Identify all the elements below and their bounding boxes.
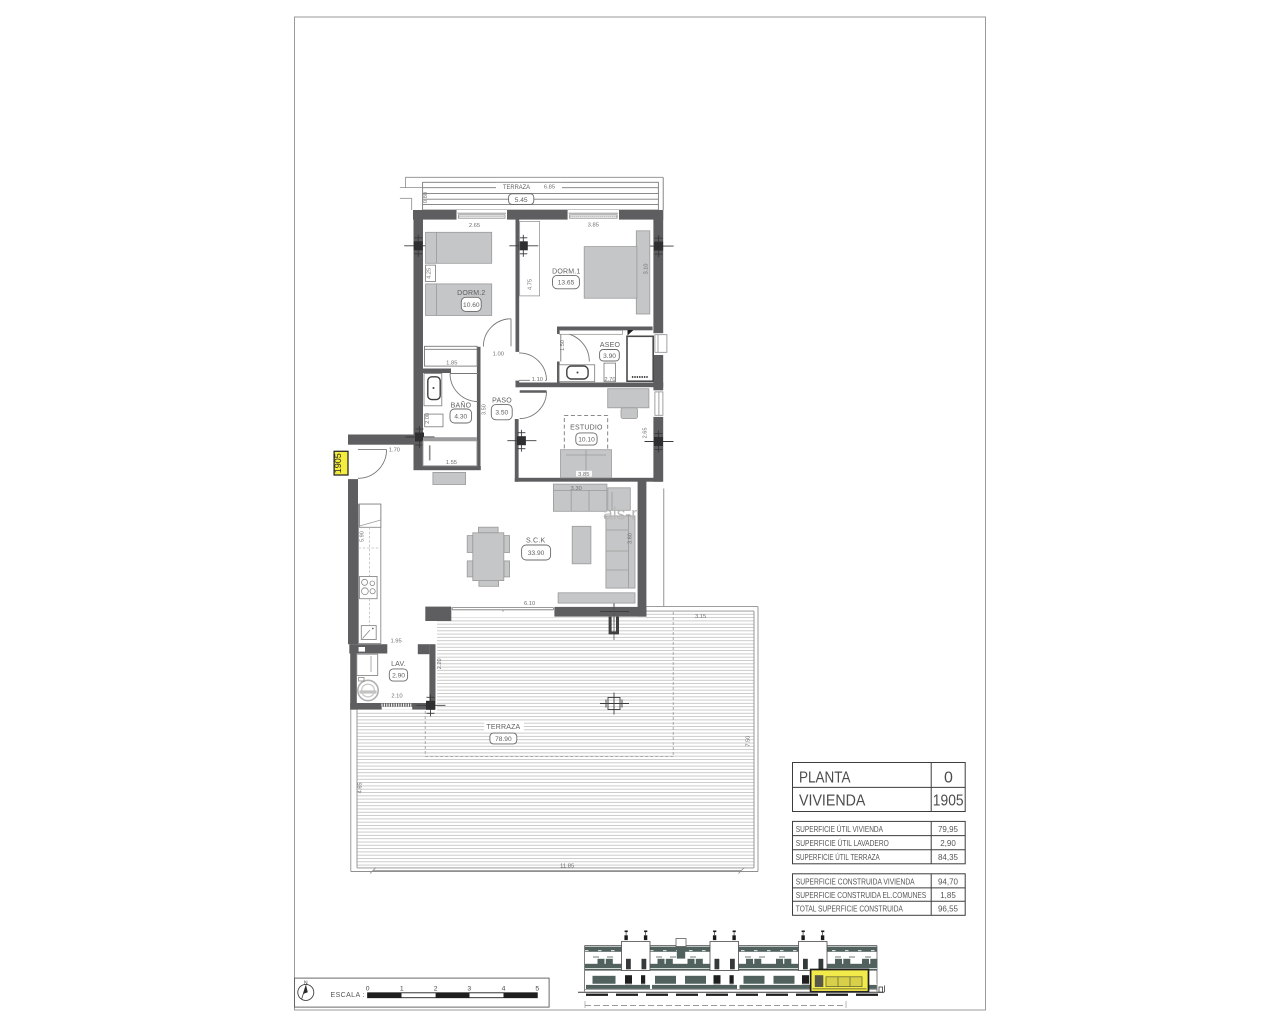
svg-text:PLANTA: PLANTA (799, 769, 851, 786)
svg-text:4.65: 4.65 (357, 782, 363, 793)
svg-text:3.60: 3.60 (627, 533, 633, 544)
svg-text:1905: 1905 (333, 453, 343, 473)
svg-text:VIVIENDA: VIVIENDA (799, 793, 866, 810)
svg-text:3.85: 3.85 (588, 223, 599, 229)
svg-text:PASO: PASO (492, 397, 512, 404)
svg-text:1.95: 1.95 (390, 639, 401, 645)
svg-text:2.65: 2.65 (643, 427, 649, 438)
svg-text:10.10: 10.10 (578, 437, 595, 444)
svg-text:ASEO: ASEO (600, 342, 621, 349)
svg-text:2.70: 2.70 (604, 377, 615, 383)
svg-text:4.25: 4.25 (427, 268, 433, 279)
svg-text:1.10: 1.10 (532, 377, 543, 383)
svg-text:96,55: 96,55 (938, 905, 959, 914)
svg-text:2.20: 2.20 (437, 658, 443, 669)
svg-text:3.85: 3.85 (578, 472, 589, 478)
svg-text:6.10: 6.10 (524, 601, 535, 607)
svg-text:N: N (304, 980, 308, 986)
svg-text:BAÑO: BAÑO (451, 401, 472, 410)
svg-text:5.90: 5.90 (360, 531, 366, 542)
svg-text:33.90: 33.90 (528, 550, 545, 557)
svg-text:DORM.1: DORM.1 (552, 268, 580, 275)
svg-text:1.55: 1.55 (446, 460, 457, 466)
svg-text:als-r: als-r (603, 504, 637, 524)
svg-text:4.75: 4.75 (527, 279, 533, 290)
svg-text:0: 0 (944, 769, 953, 786)
svg-text:1.00: 1.00 (493, 352, 504, 358)
svg-text:SUPERFICIE ÚTIL LAVADERO: SUPERFICIE ÚTIL LAVADERO (796, 839, 889, 848)
svg-text:3.30: 3.30 (571, 486, 582, 492)
svg-text:3.50: 3.50 (481, 404, 487, 415)
svg-text:4.30: 4.30 (454, 414, 467, 421)
svg-text:......: ...... (554, 504, 583, 524)
svg-text:10.60: 10.60 (463, 302, 480, 309)
svg-text:2: 2 (434, 985, 438, 992)
svg-text:DORM.2: DORM.2 (457, 290, 485, 297)
svg-text:0: 0 (366, 985, 370, 992)
svg-text:78.90: 78.90 (495, 736, 512, 743)
svg-text:11.85: 11.85 (560, 863, 574, 869)
svg-text:0.80: 0.80 (423, 192, 429, 203)
svg-text:1905: 1905 (933, 793, 964, 810)
svg-text:3.90: 3.90 (603, 353, 616, 360)
svg-text:2.10: 2.10 (391, 694, 402, 700)
svg-text:ESCALA :: ESCALA : (331, 992, 365, 999)
svg-text:3.10: 3.10 (644, 263, 650, 274)
svg-text:SUPERFICIE CONSTRUIDA EL.COMUN: SUPERFICIE CONSTRUIDA EL.COMUNES (796, 891, 926, 900)
svg-text:TOTAL SUPERFICIE CONSTRUIDA: TOTAL SUPERFICIE CONSTRUIDA (796, 905, 904, 914)
svg-text:e: e (648, 504, 658, 524)
svg-text:3.15: 3.15 (695, 614, 706, 620)
svg-text:S.C.K: S.C.K (526, 537, 545, 544)
svg-text:2.90: 2.90 (392, 673, 405, 680)
svg-text:3.50: 3.50 (495, 410, 508, 417)
svg-text:2.00: 2.00 (425, 413, 431, 424)
svg-text:2,90: 2,90 (940, 839, 956, 848)
svg-text:SUPERFICIE ÚTIL VIVIENDA: SUPERFICIE ÚTIL VIVIENDA (796, 825, 884, 834)
svg-text:1.85: 1.85 (446, 360, 457, 366)
svg-text:LAV.: LAV. (391, 661, 406, 668)
svg-text:SUPERFICIE CONSTRUIDA VIVIENDA: SUPERFICIE CONSTRUIDA VIVIENDA (796, 877, 915, 886)
svg-text:94,70: 94,70 (938, 877, 959, 886)
svg-text:6.85: 6.85 (544, 185, 555, 191)
svg-text:TERRAZA: TERRAZA (503, 184, 531, 191)
svg-text:1,85: 1,85 (940, 891, 956, 900)
svg-text:13.65: 13.65 (558, 280, 575, 287)
svg-text:ESTUDIO: ESTUDIO (570, 424, 603, 431)
svg-text:1.70: 1.70 (389, 447, 400, 453)
svg-text:84,35: 84,35 (938, 853, 959, 862)
svg-text:7.50: 7.50 (746, 736, 752, 747)
svg-text:2.65: 2.65 (469, 223, 480, 229)
svg-text:1.50: 1.50 (560, 340, 566, 351)
svg-text:5: 5 (535, 985, 539, 992)
svg-text:1: 1 (400, 985, 404, 992)
svg-text:TERRAZA: TERRAZA (486, 724, 520, 731)
svg-text:79,95: 79,95 (938, 825, 959, 834)
svg-text:5.45: 5.45 (515, 197, 528, 204)
svg-text:3: 3 (467, 985, 471, 992)
svg-text:4: 4 (502, 985, 506, 992)
svg-text:SUPERFICIE ÚTIL TERRAZA: SUPERFICIE ÚTIL TERRAZA (796, 853, 880, 862)
